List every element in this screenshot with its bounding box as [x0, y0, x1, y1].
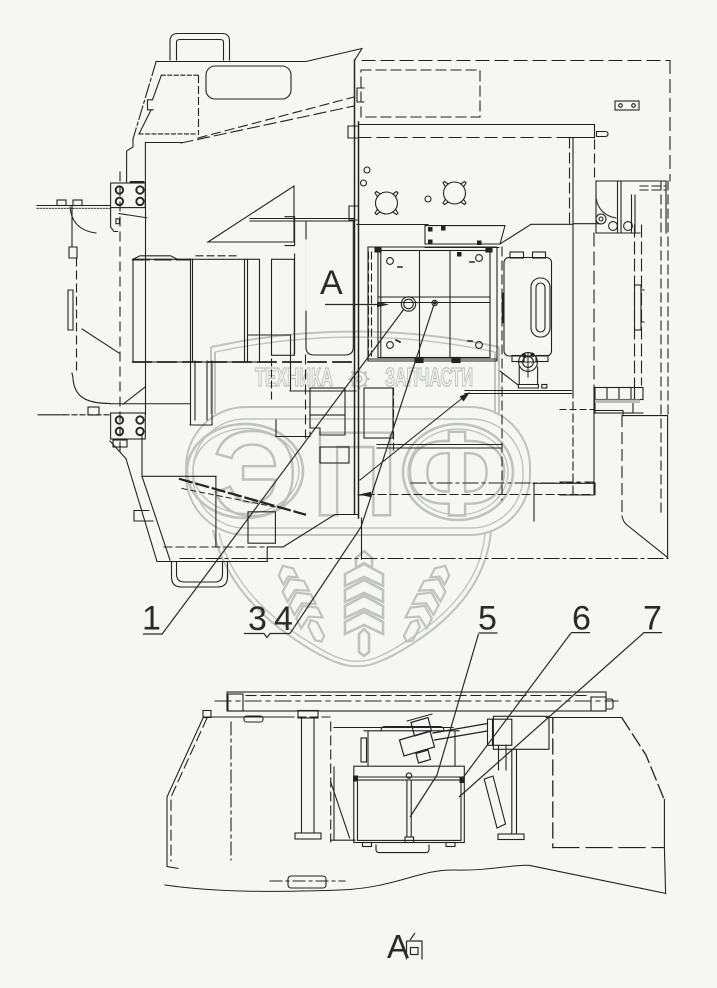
svg-text:6: 6	[572, 600, 591, 638]
svg-text:5: 5	[478, 600, 497, 638]
svg-text:A: A	[320, 264, 343, 302]
svg-text:Э: Э	[212, 407, 297, 541]
svg-text:3: 3	[248, 600, 267, 638]
svg-text:7: 7	[643, 600, 662, 638]
svg-text:A: A	[387, 928, 409, 965]
svg-text:1: 1	[142, 600, 161, 638]
svg-text:ЗАПЧАСТИ: ЗАПЧАСТИ	[385, 362, 473, 392]
svg-text:Ф: Ф	[406, 407, 508, 541]
